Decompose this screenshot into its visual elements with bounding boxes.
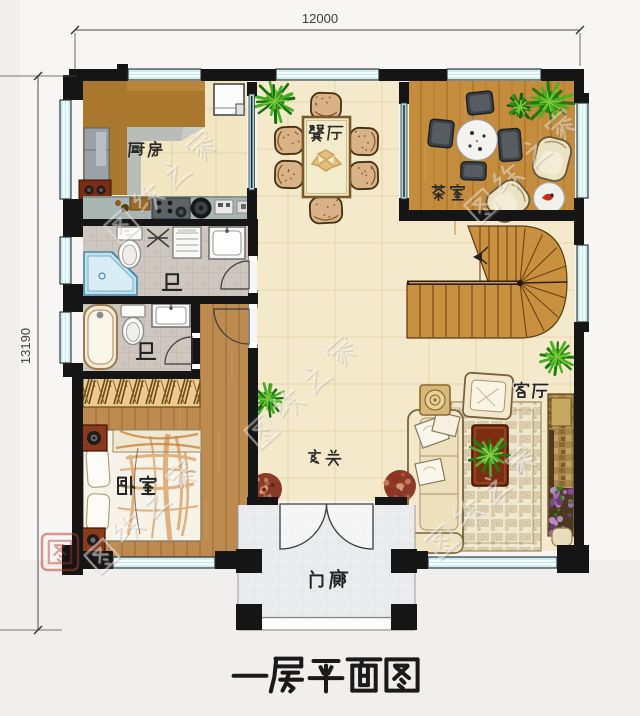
svg-text:13190: 13190 xyxy=(18,328,33,364)
svg-text:12000: 12000 xyxy=(302,11,338,26)
